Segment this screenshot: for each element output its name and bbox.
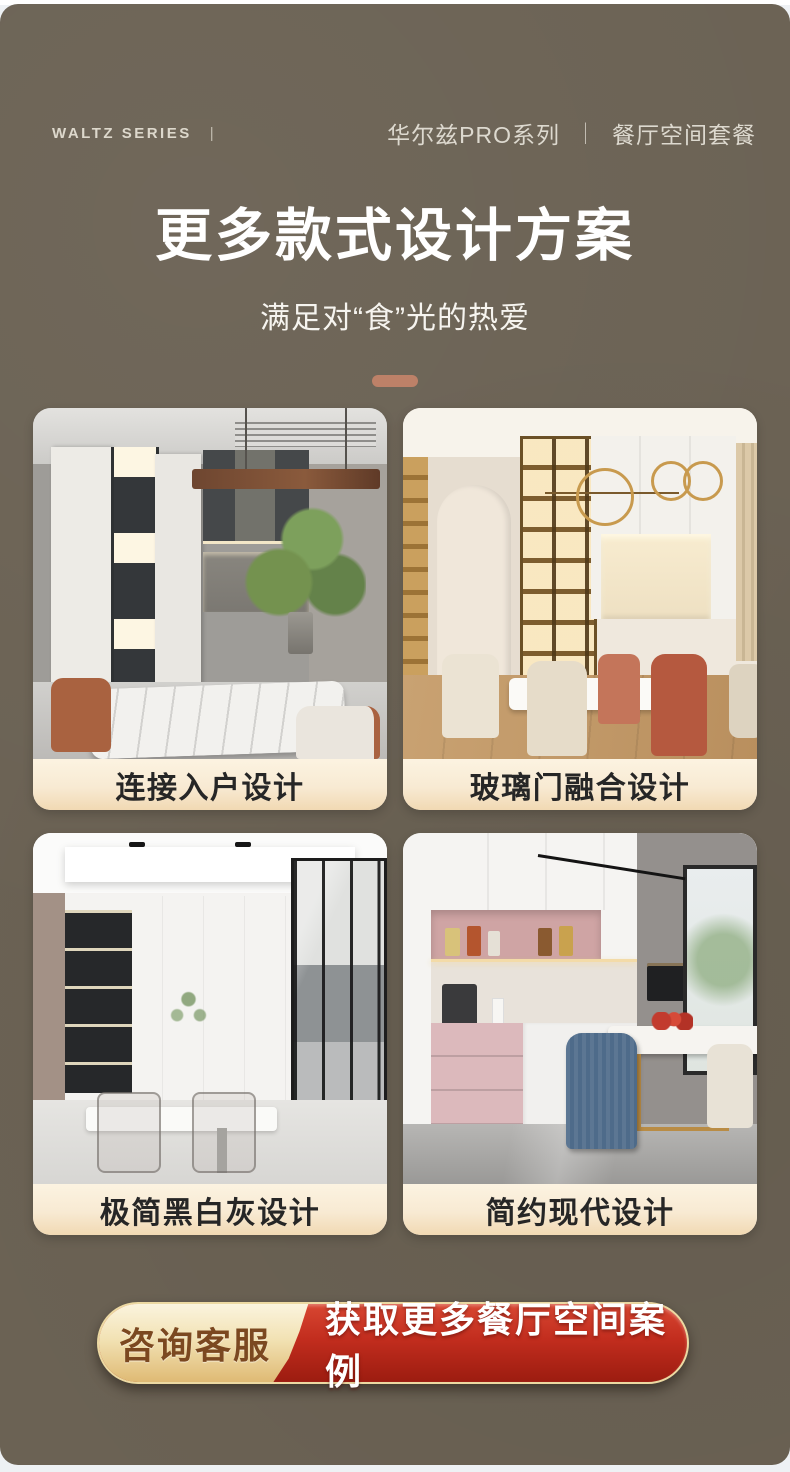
content: WALTZ SERIES | 华尔兹PRO系列 ｜ 餐厅空间套餐 更多款式设计方… bbox=[0, 0, 790, 1472]
card-photo-minimal bbox=[33, 833, 387, 1184]
scene-ac-vent bbox=[235, 422, 377, 447]
scene-jar bbox=[467, 926, 481, 956]
scene-jar bbox=[488, 931, 500, 956]
scene-chair bbox=[296, 706, 380, 759]
brand-name: WALTZ SERIES bbox=[52, 125, 192, 142]
page-subtitle: 满足对“食”光的热爱 bbox=[0, 293, 790, 337]
consult-service-button[interactable]: 咨询客服 bbox=[99, 1304, 317, 1382]
card-photo-grey-luxe bbox=[33, 408, 387, 759]
scene-fruit bbox=[651, 1012, 693, 1030]
series-separator: ｜ bbox=[575, 117, 597, 149]
scene-cabinet-column bbox=[51, 447, 111, 707]
brand-separator: | bbox=[210, 125, 216, 142]
scene-oven bbox=[647, 963, 686, 1002]
scene-chair bbox=[651, 654, 708, 756]
brand-line: WALTZ SERIES | bbox=[52, 125, 216, 142]
package-name: 餐厅空间套餐 bbox=[612, 116, 756, 150]
scene-acrylic-chair bbox=[97, 1092, 161, 1173]
scene-pendant-cord bbox=[345, 408, 347, 471]
scene-chair bbox=[442, 654, 499, 738]
card-caption: 连接入户设计 bbox=[33, 759, 387, 810]
scene-pendant-cord bbox=[245, 408, 247, 471]
scene-jar bbox=[559, 926, 573, 956]
scene-flowers bbox=[160, 980, 217, 1043]
scene-wood-pendant bbox=[192, 469, 380, 488]
series-line: 华尔兹PRO系列 ｜ 餐厅空间套餐 bbox=[387, 116, 756, 150]
scene-glass-partition bbox=[291, 858, 387, 1139]
cta-button[interactable]: 咨询客服 获取更多餐厅空间案例 bbox=[97, 1302, 689, 1384]
scene-blue-chair bbox=[566, 1033, 637, 1149]
scene-ring-light bbox=[683, 461, 723, 501]
scene-jar bbox=[538, 928, 552, 956]
get-more-cases-label[interactable]: 获取更多餐厅空间案例 bbox=[325, 1304, 673, 1382]
header: WALTZ SERIES | 华尔兹PRO系列 ｜ 餐厅空间套餐 bbox=[52, 116, 756, 150]
accent-divider bbox=[372, 375, 418, 387]
scene-acrylic-chair bbox=[192, 1092, 256, 1173]
scene-wall bbox=[33, 893, 65, 1111]
card-caption: 简约现代设计 bbox=[403, 1184, 757, 1235]
scene-bottle bbox=[492, 998, 505, 1025]
card-glass-door: 玻璃门融合设计 bbox=[403, 408, 757, 810]
scene-lit-shelf bbox=[111, 447, 159, 717]
card-minimal-bwg: 极简黑白灰设计 bbox=[33, 833, 387, 1235]
scene-ring-light bbox=[576, 468, 634, 526]
scene-chair bbox=[729, 664, 757, 738]
scene-chair bbox=[527, 661, 587, 756]
scene-cabinet-column bbox=[155, 454, 201, 703]
scene-pink-drawers bbox=[431, 1023, 523, 1128]
scene-dark-cabinet bbox=[65, 910, 132, 1093]
scene-upper-cabinets bbox=[431, 833, 636, 910]
card-caption: 极简黑白灰设计 bbox=[33, 1184, 387, 1235]
design-card-grid: 连接入户设计 bbox=[33, 408, 757, 1235]
hero: 更多款式设计方案 满足对“食”光的热爱 bbox=[0, 208, 790, 387]
scene-gold-shelf bbox=[403, 457, 428, 675]
scene-chair bbox=[598, 654, 640, 724]
card-photo-pink-modern bbox=[403, 833, 757, 1184]
scene-chair bbox=[707, 1044, 753, 1128]
scene-chair bbox=[51, 678, 111, 752]
scene-spotlight bbox=[235, 842, 251, 847]
page-background: WALTZ SERIES | 华尔兹PRO系列 ｜ 餐厅空间套餐 更多款式设计方… bbox=[0, 0, 790, 1472]
series-name: 华尔兹PRO系列 bbox=[387, 116, 560, 150]
scene-under-cabinet-light bbox=[431, 959, 636, 962]
page-title: 更多款式设计方案 bbox=[0, 208, 790, 265]
card-caption: 玻璃门融合设计 bbox=[403, 759, 757, 810]
card-entry-connection: 连接入户设计 bbox=[33, 408, 387, 810]
card-photo-cream-glass bbox=[403, 408, 757, 759]
scene-lit-niche bbox=[601, 534, 711, 618]
card-simple-modern: 简约现代设计 bbox=[403, 833, 757, 1235]
scene-coffee-machine bbox=[442, 984, 477, 1026]
scene-vase bbox=[288, 612, 313, 654]
scene-curtain bbox=[736, 443, 757, 661]
scene-jar bbox=[445, 928, 459, 956]
scene-spotlight bbox=[129, 842, 145, 847]
